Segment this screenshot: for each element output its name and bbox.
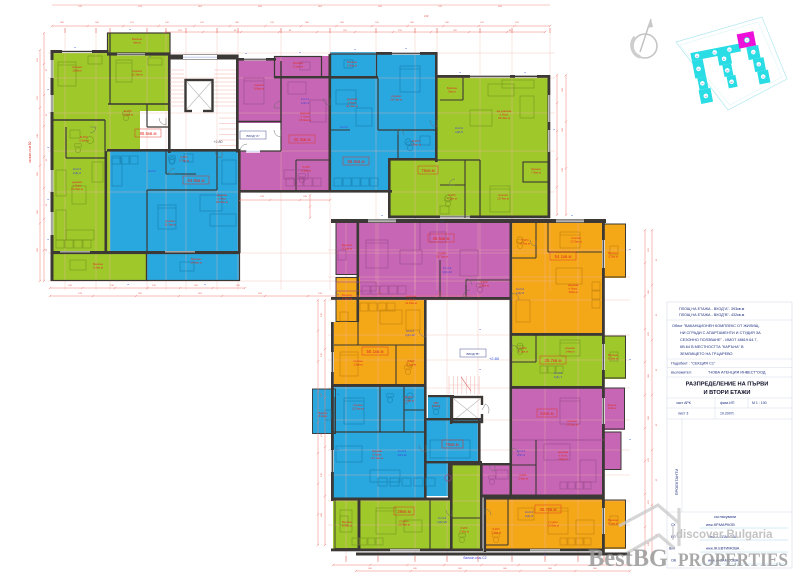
svg-text:спалня11.2кв.м: спалня11.2кв.м — [164, 219, 175, 227]
svg-text:эп: эп — [409, 554, 411, 556]
svg-text:Балкон14.9кв.м: Балкон14.9кв.м — [190, 257, 202, 265]
svg-text:1(2)-9: 1(2)-9 — [517, 453, 525, 457]
svg-text:эп: эп — [553, 129, 555, 131]
svg-text:калкан към В2: калкан към В2 — [28, 141, 32, 163]
svg-text:б.WC3.9кв.м: б.WC3.9кв.м — [518, 473, 528, 481]
svg-text:48.5кв.м: 48.5кв.м — [432, 236, 449, 241]
svg-text:54.1кв.м: 54.1кв.м — [554, 254, 571, 259]
svg-text:балкон към С2: балкон към С2 — [463, 556, 486, 560]
svg-text:эп: эп — [544, 554, 546, 556]
svg-text:Б.WC3.9кв.м: Б.WC3.9кв.м — [404, 395, 414, 403]
svg-text:спалня13.5кв.м: спалня13.5кв.м — [566, 419, 578, 427]
svg-text:дневнак.бокс27.1кв.м: дневнак.бокс27.1кв.м — [371, 449, 383, 460]
svg-text:б.WC4.1кв.м: б.WC4.1кв.м — [447, 193, 457, 201]
svg-text:1(2).5: 1(2).5 — [455, 130, 463, 134]
svg-text:эп: эп — [47, 239, 49, 241]
svg-text:эп: эп — [441, 221, 443, 223]
svg-text:СЕЗОННО ПОЛЗВАНЕ" - ИМОТ 48619: СЕЗОННО ПОЛЗВАНЕ" - ИМОТ 48619.64.7, — [680, 338, 758, 342]
svg-text:б.WC3.7кв.м: б.WC3.7кв.м — [520, 238, 530, 246]
svg-text:спалня9.8кв.м: спалня9.8кв.м — [254, 83, 264, 91]
svg-text:эп: эп — [629, 249, 631, 251]
svg-text:85.6кв.м: 85.6кв.м — [139, 131, 156, 136]
svg-text:Балкон5.3кв.м: Балкон5.3кв.м — [608, 353, 618, 361]
svg-text:И ВТОРИ ЕТАЖИ: И ВТОРИ ЕТАЖИ — [703, 390, 750, 396]
svg-text:М 1 : 100: М 1 : 100 — [752, 401, 767, 405]
svg-text:б.WC3.3кв.м: б.WC3.3кв.м — [491, 527, 501, 535]
svg-text:СХ: СХ — [671, 523, 676, 527]
svg-text:эп: эп — [204, 284, 206, 286]
svg-text:+2.80: +2.80 — [213, 140, 222, 144]
svg-text:эп: эп — [479, 419, 481, 421]
svg-text:Балкон5.3кв.м: Балкон5.3кв.м — [319, 411, 328, 418]
svg-text:Балкон5.2кв.м: Балкон5.2кв.м — [93, 262, 103, 270]
svg-text:дневнак.бокс22.4кв.м: дневнак.бокс22.4кв.м — [346, 97, 358, 108]
svg-text:Балкон5.3кв.м: Балкон5.3кв.м — [347, 60, 357, 68]
svg-text:+2.80: +2.80 — [489, 356, 500, 361]
svg-text:эп: эп — [354, 49, 356, 51]
svg-text:эп: эп — [381, 215, 383, 217]
svg-text:эп: эп — [479, 329, 481, 331]
svg-text:Ап.С1: Ап.С1 — [148, 169, 156, 173]
svg-text:спалня11.3кв.м: спалня11.3кв.м — [131, 69, 142, 77]
svg-text:эп: эп — [629, 439, 631, 441]
svg-text:Балкон3.2кв.м: Балкон3.2кв.м — [608, 403, 617, 410]
svg-text:Ап.С1: Ап.С1 — [340, 125, 348, 129]
svg-text:42.3кв.м: 42.3кв.м — [293, 137, 310, 142]
svg-text:29.7кв.м: 29.7кв.м — [544, 358, 561, 363]
svg-text:эп: эп — [127, 284, 129, 286]
svg-text:discover Bulgaria: discover Bulgaria — [676, 529, 773, 541]
svg-text:эп: эп — [337, 294, 339, 296]
svg-text:КВ.64 В МЕСТНОСТТА "КАРЪНА" В: КВ.64 В МЕСТНОСТТА "КАРЪНА" В — [680, 345, 744, 349]
svg-text:съгласували: съгласували — [714, 515, 736, 519]
svg-text:част АРК: част АРК — [676, 401, 692, 405]
svg-text:1(2)-12: 1(2)-12 — [405, 333, 415, 337]
svg-text:дневнак.бокс19кв.м: дневнак.бокс19кв.м — [568, 283, 579, 294]
svg-text:дневнас бокс15.9кв.м: дневнас бокс15.9кв.м — [299, 111, 311, 122]
svg-text:75кв.м: 75кв.м — [421, 168, 434, 173]
svg-text:Балкон5.4кв.м: Балкон5.4кв.м — [342, 293, 352, 301]
svg-text:НИ СГРАДИ С АПАРТАМЕНТИ И СТУД: НИ СГРАДИ С АПАРТАМЕНТИ И СТУДИЯ ЗА — [680, 331, 761, 335]
svg-text:дневнак.бокс19кв.м: дневнак.бокс19кв.м — [558, 450, 569, 461]
svg-text:Балкон5.2кв.м: Балкон5.2кв.м — [293, 61, 303, 69]
svg-text:възложител:: възложител: — [671, 371, 692, 375]
svg-text:"НОВА АГЕНЦИЯ ИНВЕСТ"ООД: "НОВА АГЕНЦИЯ ИНВЕСТ"ООД — [708, 371, 766, 375]
svg-text:балкон7.9кв.м: балкон7.9кв.м — [531, 167, 541, 175]
svg-text:1.99: 1.99 — [424, 15, 429, 18]
svg-text:ОВ: ОВ — [671, 559, 677, 563]
svg-text:эп: эп — [479, 369, 481, 371]
svg-text:10.2007г.: 10.2007г. — [720, 412, 735, 416]
svg-text:1(2)-2: 1(2)-2 — [73, 171, 81, 175]
svg-text:студио20.4кв.м: студио20.4кв.м — [398, 519, 410, 527]
svg-text:б.WC3.3кв.м: б.WC3.3кв.м — [459, 526, 469, 534]
svg-text:эп: эп — [47, 147, 49, 149]
svg-text:б.WC2.9кв.м: б.WC2.9кв.м — [301, 165, 311, 173]
svg-text:эп: эп — [129, 29, 131, 31]
svg-text:64.9кв.м: 64.9кв.м — [187, 178, 204, 183]
svg-text:эп: эп — [629, 359, 631, 361]
svg-text:1(2)-11: 1(2)-11 — [397, 453, 407, 457]
svg-text:ПЛОЩ НА ЕТАЖА - ВХОД"В"- 432кв: ПЛОЩ НА ЕТАЖА - ВХОД"В"- 432кв.м — [679, 313, 745, 317]
svg-text:эп: эп — [299, 52, 301, 54]
svg-text:эп: эп — [524, 72, 526, 74]
svg-text:1(2)-6: 1(2)-6 — [525, 514, 533, 518]
svg-text:70кв.м: 70кв.м — [445, 442, 458, 447]
svg-text:В4: В4 — [731, 82, 734, 84]
svg-text:Балкон5.1кв.м: Балкон5.1кв.м — [608, 518, 618, 526]
svg-text:BestBG: BestBG — [588, 545, 668, 572]
svg-text:фаза ИП: фаза ИП — [720, 401, 735, 405]
svg-text:б.WC3.7кв.м: б.WC3.7кв.м — [179, 155, 189, 163]
svg-text:б.WC3.7кв.м: б.WC3.7кв.м — [406, 359, 416, 367]
svg-text:В1: В1 — [723, 59, 726, 61]
svg-text:ЗЕМЛИЩЕТО НА ГР.ЦАРЕВО: ЗЕМЛИЩЕТО НА ГР.ЦАРЕВО — [680, 352, 733, 356]
svg-text:лист 3: лист 3 — [678, 412, 688, 416]
svg-text:Б.WC3.5кв.м: Б.WC3.5кв.м — [79, 135, 89, 143]
svg-text:PROPERTIES: PROPERTIES — [678, 550, 788, 571]
svg-text:эп: эп — [337, 449, 339, 451]
svg-text:1(2)-13: 1(2)-13 — [442, 270, 452, 274]
svg-text:35.7кв.м: 35.7кв.м — [539, 507, 556, 512]
svg-text:б.WC3.5кв.м: б.WC3.5кв.м — [479, 280, 489, 288]
svg-text:эп: эп — [74, 47, 76, 49]
svg-text:дневнак.бокс25.4кв.м: дневнак.бокс25.4кв.м — [216, 193, 228, 204]
svg-text:студио19.6кв.м: студио19.6кв.м — [547, 520, 559, 528]
svg-text:1(2)-5: 1(2)-5 — [516, 291, 524, 295]
svg-text:эп: эп — [405, 48, 407, 50]
svg-text:Подобект : "СЕКЦИЯ С1": Подобект : "СЕКЦИЯ С1" — [671, 362, 716, 366]
svg-text:студио30.7кв.м: студио30.7кв.м — [436, 251, 448, 259]
svg-text:ВХОД "А": ВХОД "А" — [246, 134, 259, 138]
svg-text:1(2)-10: 1(2)-10 — [437, 520, 447, 524]
svg-text:ПЛОЩ НА ЕТАЖА - ВХОД"А"- 393кв: ПЛОЩ НА ЕТАЖА - ВХОД"А"- 393кв.м — [679, 307, 745, 311]
svg-text:ВХОД "В": ВХОД "В" — [466, 352, 479, 356]
svg-text:39кв.м: 39кв.м — [397, 509, 410, 514]
svg-text:50.1кв.м: 50.1кв.м — [366, 349, 383, 354]
svg-text:спалня16.7кв.м: спалня16.7кв.м — [390, 94, 402, 102]
svg-text:спалня15кв.м: спалня15кв.м — [72, 65, 82, 73]
svg-text:Балкон5.2кв.м: Балкон5.2кв.м — [342, 243, 352, 251]
svg-text:Б.WC2.9кв.м: Б.WC2.9кв.м — [123, 109, 133, 117]
svg-text:спалня13кв.м: спалня13кв.м — [353, 359, 363, 367]
svg-text:дневнак.бокс11.9кв.м: дневнак.бокс11.9кв.м — [405, 294, 417, 305]
svg-text:ПРОЕКТАНТИ: ПРОЕКТАНТИ — [674, 469, 679, 496]
svg-text:В3: В3 — [726, 70, 729, 72]
svg-text:эп: эп — [337, 394, 339, 396]
svg-text:эп: эп — [571, 215, 573, 217]
svg-text:эп: эп — [149, 56, 151, 58]
svg-text:спалня13.4кв.м: спалня13.4кв.м — [497, 193, 509, 201]
svg-text:эп: эп — [459, 72, 461, 74]
svg-text:спалня15.3кв.м: спалня15.3кв.м — [352, 403, 364, 411]
svg-text:В1: В1 — [714, 52, 717, 54]
svg-text:52кв.м: 52кв.м — [540, 411, 553, 416]
svg-text:1(2)-7: 1(2)-7 — [554, 375, 562, 379]
svg-text:Балкон5.1кв.м: Балкон5.1кв.м — [608, 251, 618, 258]
svg-text:Обект "ВАКАНЦИОНЕН КОМПЛЕКС ОТ: Обект "ВАКАНЦИОНЕН КОМПЛЕКС ОТ ЖИЛИЩ- — [672, 324, 760, 328]
svg-text:дневнас бокс22.9кв.м: дневнас бокс22.9кв.м — [71, 180, 83, 191]
svg-text:спалня14кв.м: спалня14кв.м — [565, 346, 575, 354]
svg-text:Б.WC3.9кв.м: Б.WC3.9кв.м — [411, 139, 421, 147]
svg-text:спалня13.3кв.м: спалня13.3кв.м — [570, 236, 582, 244]
svg-text:В2: В2 — [728, 49, 731, 51]
svg-text:РАЗПРЕДЕЛЕНИЕ НА ПЪРВИ: РАЗПРЕДЕЛЕНИЕ НА ПЪРВИ — [686, 382, 769, 388]
svg-text:эп: эп — [245, 53, 247, 55]
svg-text:б.WC3.1кв.м: б.WC3.1кв.м — [518, 346, 528, 354]
svg-text:эп: эп — [47, 89, 49, 91]
svg-text:инж.КР.МАРКОВ: инж.КР.МАРКОВ — [706, 523, 735, 527]
svg-text:Балкон5.3кв.м: Балкон5.3кв.м — [342, 520, 352, 528]
svg-text:1(2)-3: 1(2)-3 — [301, 101, 309, 105]
svg-text:эп: эп — [47, 199, 49, 201]
svg-text:58.6кв.м: 58.6кв.м — [347, 159, 364, 164]
